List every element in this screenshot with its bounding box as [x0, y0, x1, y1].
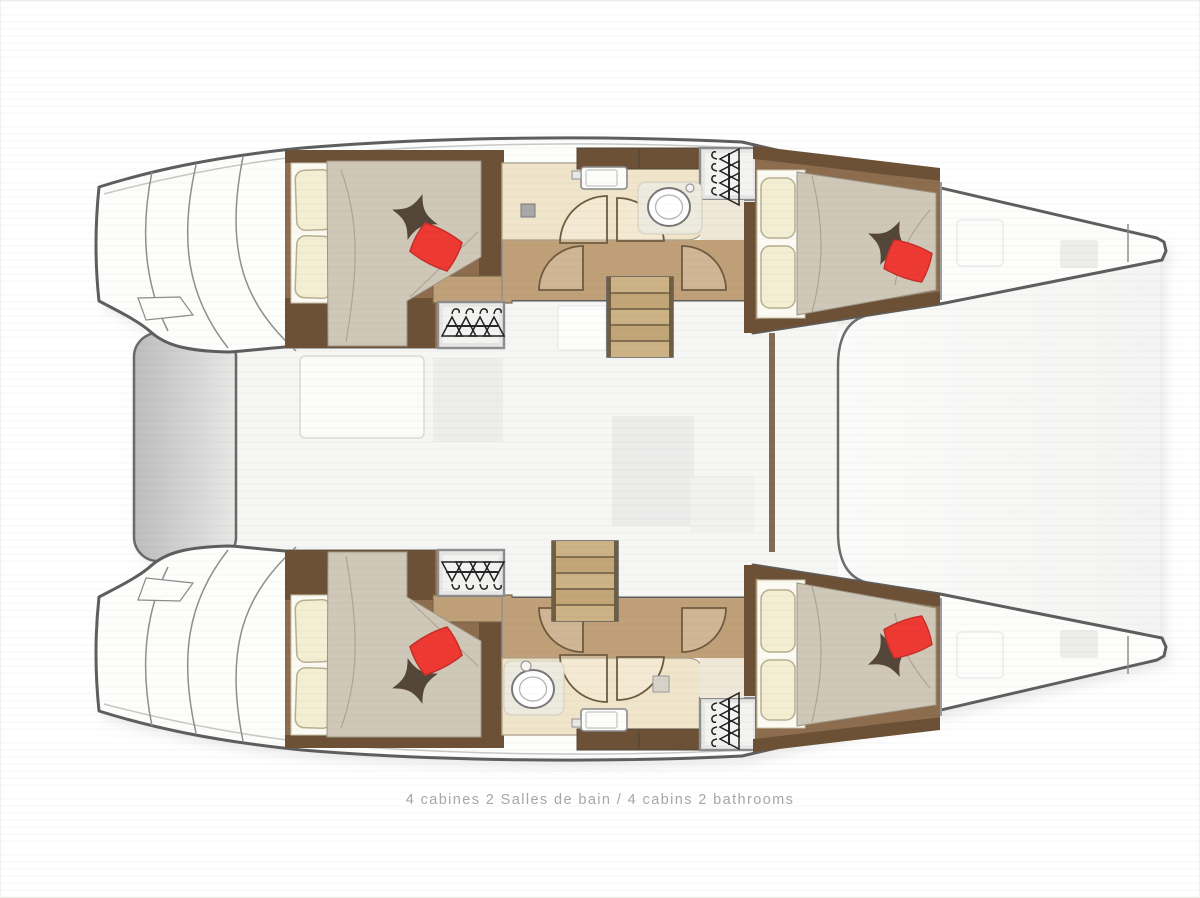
salon-seat-ghost: [690, 476, 754, 532]
toilet-port: [638, 182, 702, 234]
salon-furniture-ghost: [433, 358, 503, 442]
shower-control: [653, 676, 669, 692]
aft-cockpit: [134, 333, 236, 561]
salon-table-ghost: [612, 416, 694, 526]
salon-door-track: [769, 333, 775, 552]
toilet-starboard: [504, 661, 564, 715]
floor-plan-svg: [0, 0, 1200, 898]
shower-drain: [521, 204, 535, 217]
cockpit-table: [300, 356, 424, 438]
stairs-starboard: [552, 541, 618, 621]
stairs-port: [607, 277, 673, 357]
galley-ghost: [558, 306, 606, 350]
trampoline: [838, 261, 1160, 637]
catamaran-floor-plan: 4 cabines 2 Salles de bain / 4 cabins 2 …: [0, 0, 1200, 898]
plan-caption: 4 cabines 2 Salles de bain / 4 cabins 2 …: [0, 792, 1200, 808]
